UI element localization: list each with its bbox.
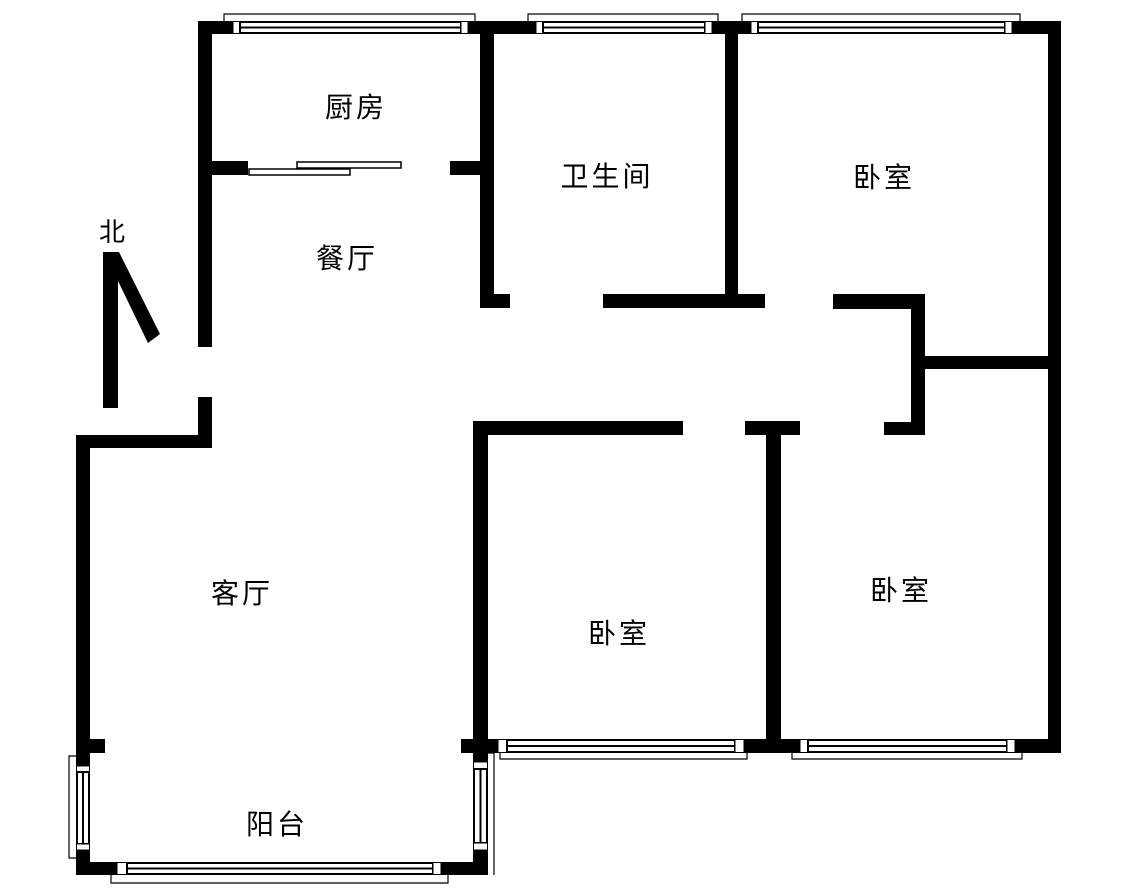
bathroom-window-sill <box>528 14 718 21</box>
bathroom-window <box>536 22 712 34</box>
windows <box>77 22 1016 875</box>
bedroom-top-right-window-sill <box>742 14 1020 21</box>
window-cap <box>800 740 808 753</box>
window-cap <box>751 22 758 34</box>
bedroom-bottom-right-window-sill <box>792 753 1022 759</box>
kitchen-window <box>233 22 468 34</box>
bedroom-bottom-right-top-stub <box>884 422 925 435</box>
bathroom-bottom-wall <box>603 294 765 308</box>
balcony-right-window-sill <box>488 753 494 875</box>
bedroom-top-right-window <box>751 22 1012 34</box>
balcony-opening-pier-left <box>89 739 105 753</box>
bedroom-middle-label: 卧室 <box>588 618 650 650</box>
bedroom-middle-left-wall <box>473 421 488 762</box>
north-arrow <box>103 252 160 408</box>
kitchen-bottom-wall <box>212 161 248 175</box>
bedrooms-bottom-wall-segment <box>1015 739 1061 753</box>
bedrooms-divider-wall-horizontal <box>925 356 1048 369</box>
window-cap <box>233 22 240 34</box>
bathroom-right-wall <box>725 34 738 294</box>
window-cap <box>1005 22 1012 34</box>
wall-left-upper <box>198 21 212 347</box>
bedrooms-bottom-wall-segment <box>744 739 800 753</box>
balcony-bottom-window-sill <box>111 875 448 883</box>
balcony-corner-bl <box>90 862 117 875</box>
wall-livingroom-top <box>76 435 212 448</box>
sliding-door-panel <box>249 169 350 175</box>
window-cap <box>498 740 507 753</box>
dining-label: 餐厅 <box>316 243 378 275</box>
bathroom-left-wall <box>480 34 494 308</box>
window-cap <box>117 863 127 875</box>
balcony-bottom-window <box>117 863 441 875</box>
wall-right-outer <box>1048 21 1061 752</box>
balcony-left-window <box>77 766 90 850</box>
window-cap <box>77 844 90 850</box>
bedrooms-divider-wall-vertical <box>766 435 781 739</box>
north-label: 北 <box>99 218 125 247</box>
interior-walls <box>89 34 1061 762</box>
wall-segment <box>468 21 536 34</box>
kitchen-window-sill <box>224 14 475 21</box>
balcony-left-window-sill <box>69 756 76 858</box>
balcony-opening-pier-right <box>461 739 498 753</box>
kitchen-label: 厨房 <box>325 92 387 124</box>
window-cap <box>433 863 441 875</box>
window-cap <box>536 22 543 34</box>
kitchen-sliding-door <box>249 162 401 175</box>
window-cap <box>461 22 468 34</box>
balcony-corner-br <box>473 850 488 875</box>
bedroom-bottom-right-window <box>800 740 1015 753</box>
bedroom-bottom-right-label: 卧室 <box>870 575 932 607</box>
living-room-label: 客厅 <box>211 578 273 610</box>
bedroom-middle-window <box>498 740 744 753</box>
sliding-door-panel <box>297 162 401 168</box>
floor-plan-canvas: 北 厨房 餐厅 卫生间 卧室 客厅 卧室 卧室 阳台 <box>0 0 1148 893</box>
balcony-right-window <box>474 762 488 850</box>
kitchen-bottom-wall <box>450 161 480 175</box>
wall-left-lower <box>76 435 90 766</box>
room-labels: 北 厨房 餐厅 卫生间 卧室 客厅 卧室 卧室 阳台 <box>99 92 932 841</box>
floor-plan: 北 厨房 餐厅 卫生间 卧室 客厅 卧室 卧室 阳台 <box>0 0 1148 893</box>
wall-segment <box>712 21 751 34</box>
bedroom-middle-window-sill <box>500 753 747 759</box>
hallway-jog-wall-vertical <box>911 309 925 435</box>
bedroom-top-right-bottom-wall <box>833 294 925 309</box>
bathroom-label: 卫生间 <box>560 161 653 193</box>
window-cap <box>1007 740 1015 753</box>
bedroom-bottom-right-top-wall <box>745 421 800 435</box>
window-cap <box>474 843 488 850</box>
bathroom-door-stub <box>480 294 510 308</box>
bedroom-middle-top-wall <box>473 421 683 435</box>
balcony-corner-bl <box>76 848 90 875</box>
window-cap <box>474 762 488 769</box>
balcony-label: 阳台 <box>246 809 308 841</box>
window-cap <box>735 740 744 753</box>
window-cap <box>705 22 712 34</box>
bedroom-top-right-label: 卧室 <box>853 162 915 194</box>
